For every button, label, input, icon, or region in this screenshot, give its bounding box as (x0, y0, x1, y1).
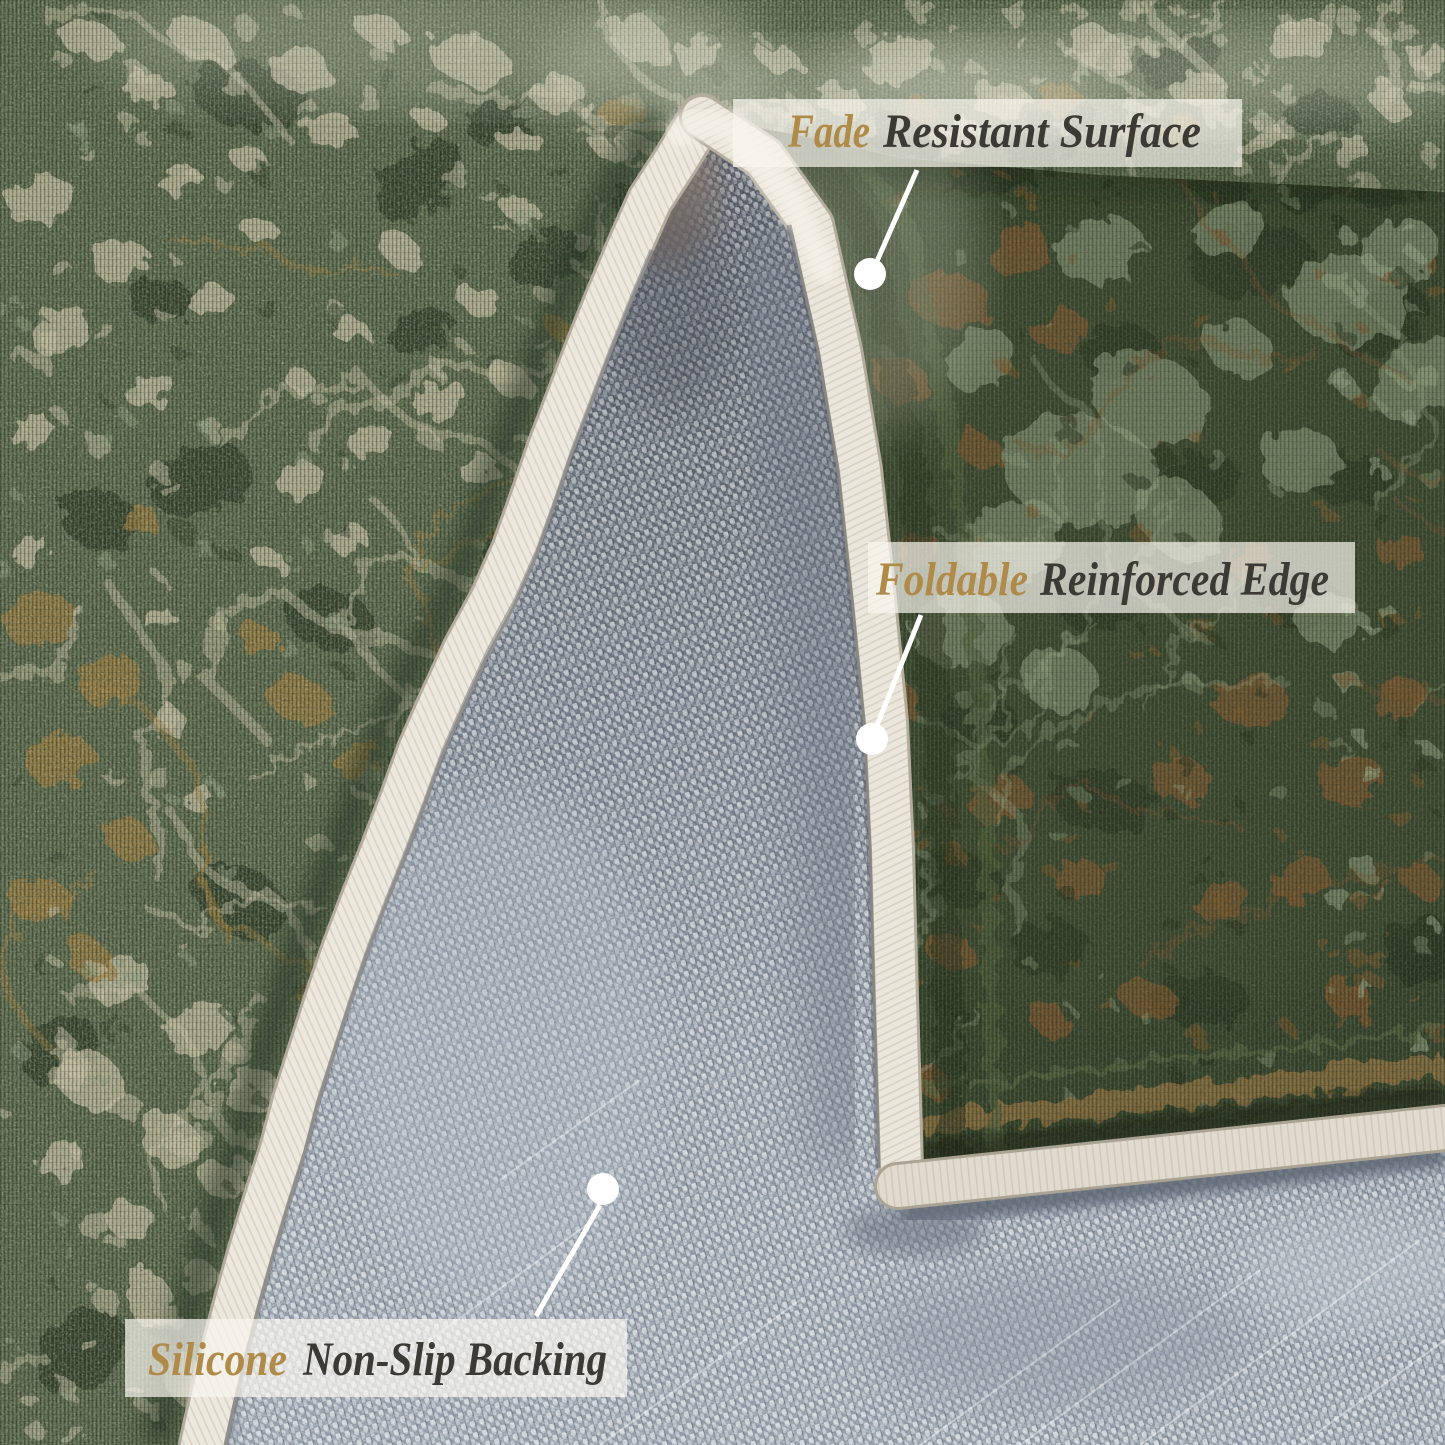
svg-text:Resistant Surface: Resistant Surface (882, 105, 1201, 158)
svg-text:Fade: Fade (787, 105, 870, 158)
svg-text:Reinforced Edge: Reinforced Edge (1039, 553, 1329, 606)
svg-text:Non-Slip Backing: Non-Slip Backing (302, 1333, 607, 1386)
svg-text:Foldable: Foldable (875, 553, 1028, 606)
svg-text:Silicone: Silicone (148, 1333, 287, 1386)
